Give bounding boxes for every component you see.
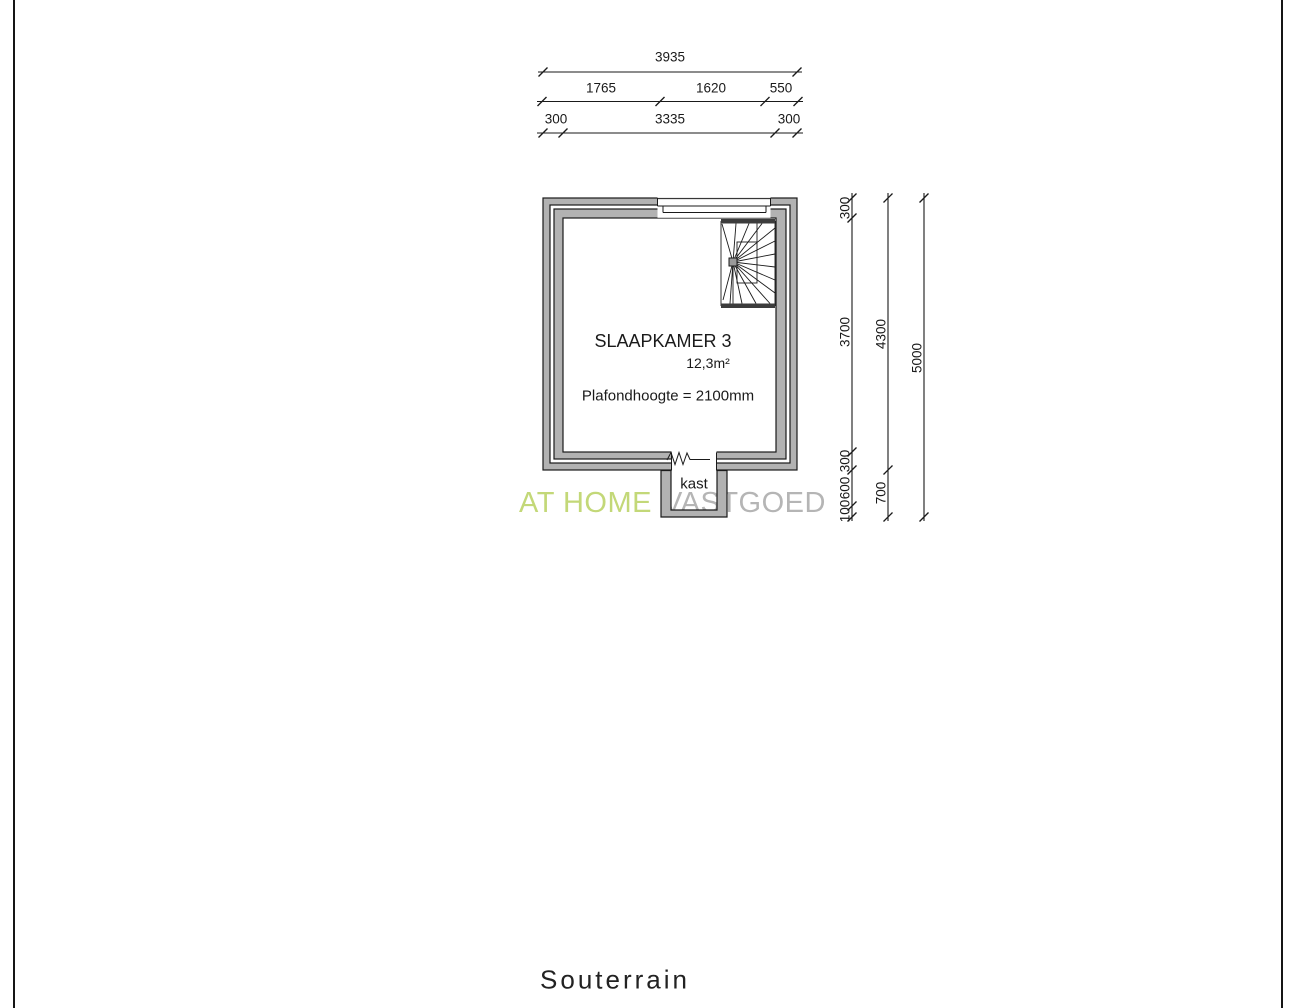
dim-label-700: 700 (874, 482, 888, 505)
ceiling-height-label: Plafondhoogte = 2100mm (582, 389, 754, 404)
closet-label: kast (680, 477, 708, 492)
dim-label-closet-wall: 100 (838, 500, 852, 523)
dim-label-closet-depth: 600 (838, 477, 852, 500)
closet-opening (667, 451, 717, 471)
stair-newel-post (729, 258, 737, 266)
dim-label-wall-right: 300 (778, 112, 801, 126)
dim-label-total-width: 3935 (655, 50, 685, 64)
dim-label-wall-left: 300 (545, 112, 568, 126)
room-area-label: 12,3m² (686, 356, 730, 370)
window-symbol (658, 197, 771, 217)
floor-title: Souterrain (540, 965, 690, 996)
dim-label-1620: 1620 (696, 81, 726, 95)
dim-label-4300: 4300 (874, 319, 888, 349)
floorplan-page: AT HOME VASTGOED (0, 0, 1296, 1008)
dim-label-interior-height: 3700 (838, 317, 852, 347)
floor-plan-drawing (0, 0, 1296, 1008)
dim-label-total-height: 5000 (910, 343, 924, 373)
room-name-label: SLAAPKAMER 3 (594, 332, 731, 350)
dim-label-interior-width: 3335 (655, 112, 685, 126)
dim-label-wall-top: 300 (838, 197, 852, 220)
dim-label-1765: 1765 (586, 81, 616, 95)
dim-label-wall-bottom: 300 (838, 450, 852, 473)
dim-label-550: 550 (770, 81, 793, 95)
